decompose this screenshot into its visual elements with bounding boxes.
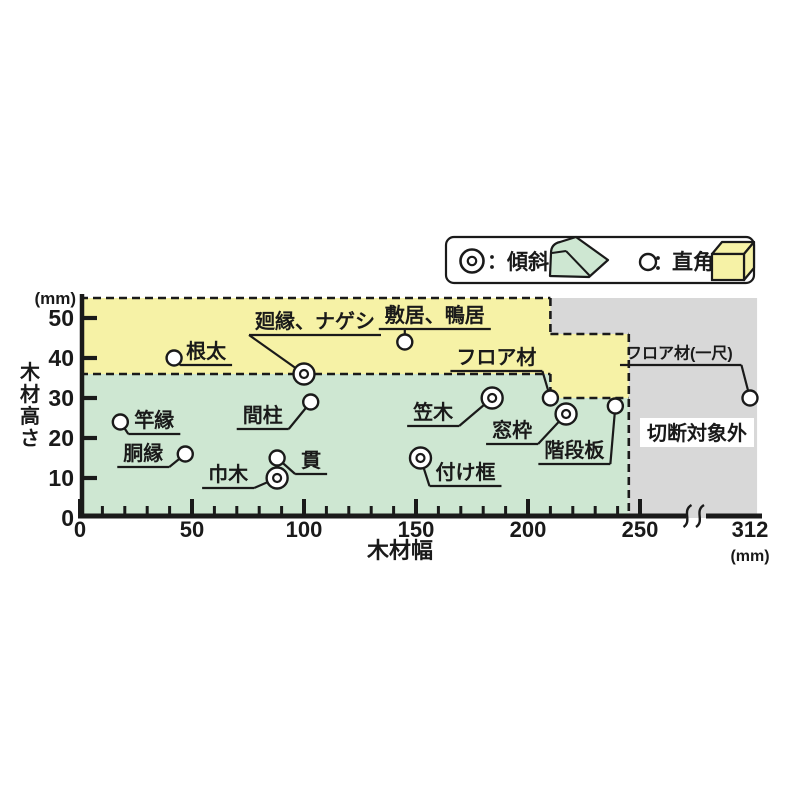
point-label: 廻縁、ナゲシ	[254, 309, 375, 333]
legend-separator-1: ：	[487, 251, 507, 273]
marker-inner-circle	[562, 410, 570, 418]
y-axis-title-char: 木	[19, 360, 41, 384]
x-axis-unit: (mm)	[730, 548, 769, 565]
marker-single-circle	[113, 415, 128, 430]
marker-single-circle	[270, 451, 285, 466]
marker-single-circle	[742, 391, 757, 406]
y-tick-label: 40	[48, 345, 74, 371]
marker-single-circle	[167, 351, 182, 366]
marker-inner-circle	[416, 454, 424, 462]
marker-single-circle	[397, 335, 412, 350]
y-axis-title-char: 材	[20, 383, 40, 406]
point-label: 間柱	[243, 403, 283, 427]
point-label: 根太	[186, 339, 227, 363]
marker-inner-circle	[300, 370, 308, 378]
x-tick-label: 100	[286, 517, 323, 542]
marker-single-circle	[608, 399, 623, 414]
y-axis-title: 木材高さ	[19, 360, 41, 450]
excluded-region-label: 切断対象外	[647, 421, 747, 445]
point-label: 敷居、鴨居	[385, 303, 485, 327]
marker-single-circle	[543, 391, 558, 406]
y-tick-label: 10	[48, 465, 74, 491]
point-label: 窓枠	[492, 418, 532, 442]
legend-double-circle-icon	[461, 250, 484, 273]
legend-separator-2: ：	[653, 252, 673, 274]
y-axis-title-char: 高	[20, 404, 40, 428]
wood-cutting-capacity-chart: 01020304050050100150200250312 根太竿縁胴縁廻縁、ナ…	[0, 0, 800, 800]
y-tick-label: 20	[48, 425, 74, 451]
point-label: 付け框	[435, 460, 495, 484]
x-axis-title: 木材幅	[366, 538, 433, 563]
y-tick-label: 30	[48, 385, 74, 411]
y-axis-unit: (mm)	[34, 289, 76, 308]
y-tick-label: 0	[61, 505, 74, 531]
marker-inner-circle	[273, 474, 281, 482]
legend-label-square: 直角	[672, 250, 714, 274]
y-axis-title-char: さ	[20, 427, 40, 450]
point-label: 階段板	[544, 438, 605, 462]
point-label: 笠木	[412, 400, 454, 424]
y-tick-label: 50	[48, 305, 74, 331]
point-label: 胴縁	[122, 441, 163, 465]
x-tick-label: 50	[180, 517, 204, 542]
x-tick-label: 250	[622, 517, 659, 542]
point-label: フロア材	[456, 346, 536, 369]
x-tick-label: 0	[74, 517, 86, 542]
point-label: 竿縁	[134, 408, 174, 432]
x-tick-label-break: 312	[732, 517, 769, 542]
legend-label-bevel: 傾斜	[506, 250, 549, 274]
x-tick-label: 200	[510, 517, 547, 542]
marker-single-circle	[178, 447, 193, 462]
marker-single-circle	[303, 395, 318, 410]
marker-inner-circle	[488, 394, 496, 402]
square-wood-icon	[712, 242, 754, 280]
point-label: 巾木	[208, 462, 249, 486]
point-label: フロア材(一尺)	[626, 344, 733, 363]
legend: ： 傾斜 ： 直角	[446, 237, 754, 283]
point-label: 貫	[301, 449, 321, 472]
